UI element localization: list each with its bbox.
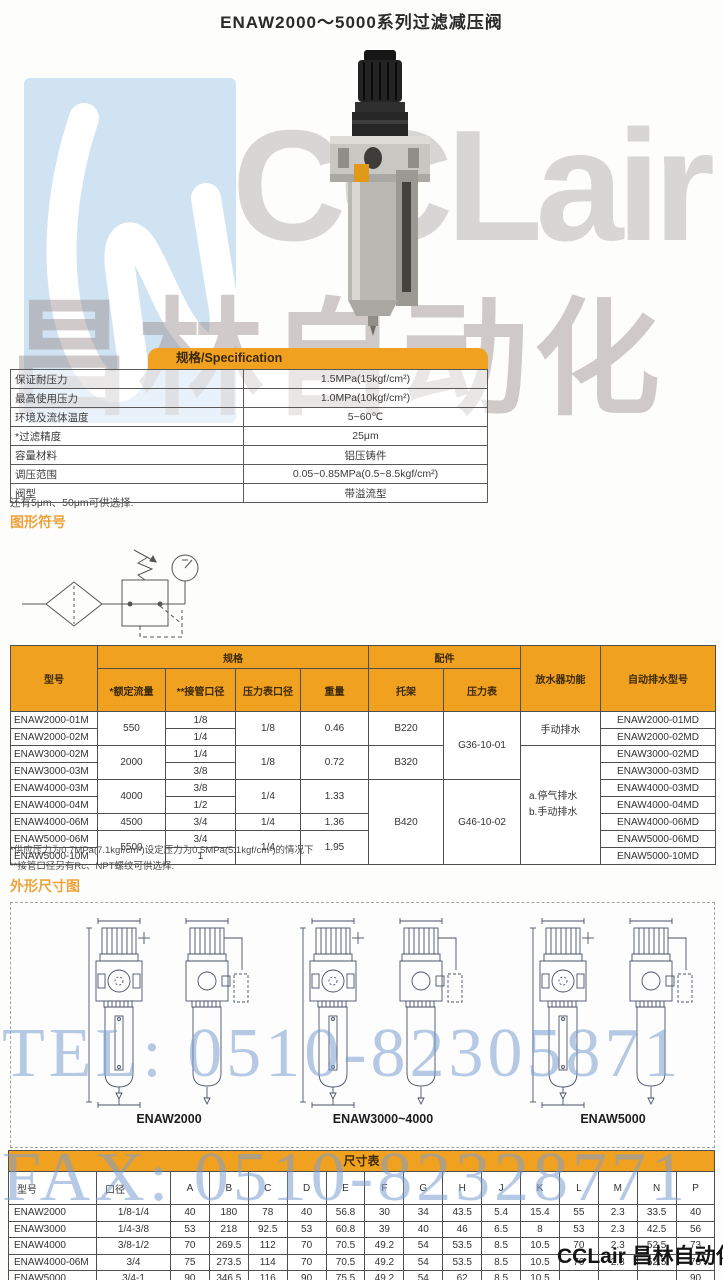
spec-row: 保证耐压力1.5MPa(15kgf/cm²): [11, 370, 488, 389]
symbol-section-title: 图形符号: [10, 512, 66, 532]
spec-row: 调压范围0.05~0.85MPa(0.5~8.5kgf/cm²): [11, 465, 488, 484]
footnote-2: **接管口径另有Rc、NPT螺纹可供选择.: [10, 859, 314, 875]
cell-flow: 4500: [98, 814, 166, 831]
cell: [559, 1271, 598, 1280]
cell-auto: ENAW4000-06MD: [601, 814, 716, 831]
brand-text-watermark: CCLair: [232, 96, 708, 277]
cell: 42.5: [637, 1221, 676, 1238]
spec-label: 保证耐压力: [11, 370, 244, 389]
cell: 53: [287, 1221, 326, 1238]
col-gauge-port: 压力表口径: [236, 669, 301, 712]
cell-auto: ENAW2000-02MD: [601, 729, 716, 746]
spec-row: 容量材料铝压铸件: [11, 446, 488, 465]
cell: 6.5: [482, 1221, 521, 1238]
cell: 92.5: [248, 1221, 287, 1238]
cell-model: ENAW4000-03M: [11, 780, 98, 797]
cell: 2.3: [598, 1221, 637, 1238]
col-header: M: [598, 1172, 637, 1205]
cell: 112: [248, 1238, 287, 1255]
catalog-page: CCLair 昌林自动化 ENAW2000～5000系列过滤减压阀 规格/Spe…: [0, 0, 723, 1280]
spec-value: 25μm: [244, 427, 488, 446]
cell: 43.5: [443, 1205, 482, 1222]
cell: 30: [365, 1205, 404, 1222]
cell: 49.2: [365, 1254, 404, 1271]
cell: 2.3: [598, 1254, 637, 1271]
cell-auto: ENAW5000-06MD: [601, 831, 716, 848]
col-header: C: [248, 1172, 287, 1205]
cell-model: ENAW4000-06M: [11, 814, 98, 831]
col-flow: *额定流量: [98, 669, 166, 712]
cell: 90: [171, 1271, 210, 1280]
cell-auto: ENAW5000-10MD: [601, 848, 716, 865]
cell: 70: [171, 1238, 210, 1255]
page-title: ENAW2000～5000系列过滤减压阀: [0, 8, 723, 33]
cell: 73: [676, 1254, 715, 1271]
col-spec-group: 规格: [98, 646, 369, 669]
cell-model: ENAW4000-04M: [11, 797, 98, 814]
cell-bracket: B320: [369, 746, 444, 780]
model-table: 型号 规格 配件 放水器功能 自动排水型号 *额定流量 **接管口径 压力表口径…: [10, 645, 716, 865]
table-row: ENAW4000-06M 4500 3/4 1/4 1.36 ENAW4000-…: [11, 814, 716, 831]
cell: 10.5: [521, 1254, 560, 1271]
cell: 70.5: [326, 1254, 365, 1271]
cell-auto: ENAW2000-01MD: [601, 712, 716, 729]
spec-section-header: 规格/Specification: [148, 348, 488, 369]
cell: 1/4-3/8: [97, 1221, 171, 1238]
cell: 54: [404, 1238, 443, 1255]
cell-gauge-port: 1/8: [236, 712, 301, 746]
cell: 70: [287, 1238, 326, 1255]
table-row: ENAW50003/4-190346.51169075.549.254628.5…: [9, 1271, 715, 1280]
cell-auto: ENAW4000-03MD: [601, 780, 716, 797]
cell: 53.5: [443, 1254, 482, 1271]
cell: 269.5: [209, 1238, 248, 1255]
spec-value: 0.05~0.85MPa(0.5~8.5kgf/cm²): [244, 465, 488, 484]
spec-value: 带溢流型: [244, 484, 488, 503]
cell: 53: [559, 1221, 598, 1238]
cell-weight: 0.46: [301, 712, 369, 746]
cell: 273.5: [209, 1254, 248, 1271]
cell-flow: 550: [98, 712, 166, 746]
cell-model: ENAW2000-01M: [11, 712, 98, 729]
cell: 53.5: [443, 1238, 482, 1255]
spec-row: 最高使用压力1.0MPa(10kgf/cm²): [11, 389, 488, 408]
cell-drain: a.停气排水b.手动排水: [521, 746, 601, 865]
col-header: 型号: [9, 1172, 97, 1205]
col-auto-model: 自动排水型号: [601, 646, 716, 712]
cell: 114: [248, 1254, 287, 1271]
col-header: D: [287, 1172, 326, 1205]
cell-weight: 1.36: [301, 814, 369, 831]
cell: 75: [171, 1254, 210, 1271]
spec-table: 保证耐压力1.5MPa(15kgf/cm²) 最高使用压力1.0MPa(10kg…: [10, 369, 488, 503]
col-header: E: [326, 1172, 365, 1205]
cell-weight: 0.72: [301, 746, 369, 780]
dimension-table-section: 尺寸表 型号 口径 A B C D E F G H J K L: [8, 1150, 715, 1280]
spec-label: 最高使用压力: [11, 389, 244, 408]
spec-label: 环境及流体温度: [11, 408, 244, 427]
cell: 46: [443, 1221, 482, 1238]
spec-row: 环境及流体温度5~60℃: [11, 408, 488, 427]
table-row: ENAW4000-06M3/475273.51147070.549.25453.…: [9, 1254, 715, 1271]
table-row: ENAW20001/8-1/440180784056.8303443.55.41…: [9, 1205, 715, 1222]
table-row: ENAW4000-03M 4000 3/8 1/4 1.33 B420 G46-…: [11, 780, 716, 797]
cell-model: ENAW3000-03M: [11, 763, 98, 780]
cell: 52.5: [637, 1238, 676, 1255]
cell: 8.5: [482, 1271, 521, 1280]
cell-port: 1/8: [166, 712, 236, 729]
cell: 40: [676, 1205, 715, 1222]
table-row: ENAW30001/4-3/85321892.55360.83940466.58…: [9, 1221, 715, 1238]
dimension-table-title: 尺寸表: [8, 1150, 715, 1171]
drawing-label-enaw2000: ENAW2000: [84, 1112, 254, 1126]
cell-auto: ENAW3000-02MD: [601, 746, 716, 763]
table-footnotes: *供应压力为0.7MPa(7.1kgf/cm²)设定压力为0.5MPa(5.1k…: [10, 843, 314, 875]
cell: 70: [559, 1238, 598, 1255]
col-weight: 重量: [301, 669, 369, 712]
table-row: ENAW3000-02M 2000 1/4 1/8 0.72 B320 a.停气…: [11, 746, 716, 763]
drawing-label-enaw3000-4000: ENAW3000~4000: [293, 1112, 473, 1126]
cell: 10.5: [521, 1271, 560, 1280]
col-header: N: [637, 1172, 676, 1205]
cell-drain: 手动排水: [521, 712, 601, 746]
spec-label: *过滤精度: [11, 427, 244, 446]
col-header: B: [209, 1172, 248, 1205]
drawing-enaw5000: [528, 916, 698, 1112]
col-gauge: 压力表: [444, 669, 521, 712]
drawing-enaw2000: [84, 916, 254, 1112]
cell: ENAW3000: [9, 1221, 97, 1238]
cell-bracket: B420: [369, 780, 444, 865]
cell-port: 3/8: [166, 763, 236, 780]
cell: ENAW4000: [9, 1238, 97, 1255]
cell: 346.5: [209, 1271, 248, 1280]
cell: 3/8-1/2: [97, 1238, 171, 1255]
spec-value: 铝压铸件: [244, 446, 488, 465]
cell: [598, 1271, 637, 1280]
spec-value: 1.0MPa(10kgf/cm²): [244, 389, 488, 408]
drain-option-a: a.停气排水: [529, 791, 577, 802]
col-header: A: [171, 1172, 210, 1205]
cell-port: 3/4: [166, 814, 236, 831]
cell-auto: ENAW4000-04MD: [601, 797, 716, 814]
spec-label: 调压范围: [11, 465, 244, 484]
cell-port: 1/4: [166, 729, 236, 746]
cell: 40: [287, 1205, 326, 1222]
cell-gauge-port: 1/8: [236, 746, 301, 780]
drawing-label-enaw5000: ENAW5000: [528, 1112, 698, 1126]
cell-bracket: B220: [369, 712, 444, 746]
dimension-table: 型号 口径 A B C D E F G H J K L M N P: [8, 1171, 715, 1280]
cell: ENAW2000: [9, 1205, 97, 1222]
cell-flow: 4000: [98, 780, 166, 814]
cell: 8.5: [482, 1254, 521, 1271]
cell: 54: [404, 1271, 443, 1280]
cell: 8.5: [482, 1238, 521, 1255]
cell-model: ENAW2000-02M: [11, 729, 98, 746]
spec-note: 还有5μm、50μm可供选择.: [10, 495, 134, 510]
col-header: K: [521, 1172, 560, 1205]
cell-gauge: G36-10-01: [444, 712, 521, 780]
cell-port: 1/2: [166, 797, 236, 814]
cell: 116: [248, 1271, 287, 1280]
cell: 10.5: [521, 1238, 560, 1255]
spec-value: 5~60℃: [244, 408, 488, 427]
pneumatic-symbol-diagram: [22, 536, 207, 638]
col-header: F: [365, 1172, 404, 1205]
col-header: G: [404, 1172, 443, 1205]
col-header: L: [559, 1172, 598, 1205]
cell: 49.2: [365, 1238, 404, 1255]
col-header: P: [676, 1172, 715, 1205]
cell: 60.8: [326, 1221, 365, 1238]
cell: 56.8: [326, 1205, 365, 1222]
drawing-enaw3000-4000: [298, 916, 468, 1112]
cell: 62: [443, 1271, 482, 1280]
table-header-row: 型号 规格 配件 放水器功能 自动排水型号: [11, 646, 716, 669]
cell-weight: 1.33: [301, 780, 369, 814]
cell: 56: [676, 1221, 715, 1238]
cell-auto: ENAW3000-03MD: [601, 763, 716, 780]
cell: 90: [676, 1271, 715, 1280]
cell: 39: [365, 1221, 404, 1238]
cell: 55: [559, 1205, 598, 1222]
cell: 34: [404, 1205, 443, 1222]
cell-port: 1/4: [166, 746, 236, 763]
cell: 8: [521, 1221, 560, 1238]
cell: 73: [676, 1238, 715, 1255]
dimension-section-title: 外形尺寸图: [10, 876, 80, 896]
col-header: J: [482, 1172, 521, 1205]
cell: 2.3: [598, 1205, 637, 1222]
cell: 75.5: [326, 1271, 365, 1280]
cell: 52.5: [637, 1254, 676, 1271]
col-acc-group: 配件: [369, 646, 521, 669]
cell: 3/4-1: [97, 1271, 171, 1280]
cell: 33.5: [637, 1205, 676, 1222]
cell: 53: [171, 1221, 210, 1238]
cell: 70: [559, 1254, 598, 1271]
drain-option-b: b.手动排水: [529, 807, 577, 818]
cell: 40: [404, 1221, 443, 1238]
col-drain: 放水器功能: [521, 646, 601, 712]
col-model: 型号: [11, 646, 98, 712]
col-port: **接管口径: [166, 669, 236, 712]
cell-gauge-port: 1/4: [236, 814, 301, 831]
cell: 40: [171, 1205, 210, 1222]
cell: 1/8-1/4: [97, 1205, 171, 1222]
cell: 70.5: [326, 1238, 365, 1255]
footnote-1: *供应压力为0.7MPa(7.1kgf/cm²)设定压力为0.5MPa(5.1k…: [10, 843, 314, 859]
cell: 15.4: [521, 1205, 560, 1222]
cell: 49.2: [365, 1271, 404, 1280]
cell-gauge: G46-10-02: [444, 780, 521, 865]
cell: 180: [209, 1205, 248, 1222]
cell: 90: [287, 1271, 326, 1280]
cell-gauge-port: 1/4: [236, 780, 301, 814]
spec-value: 1.5MPa(15kgf/cm²): [244, 370, 488, 389]
cell-flow: 2000: [98, 746, 166, 780]
cell: 3/4: [97, 1254, 171, 1271]
cell: 70: [287, 1254, 326, 1271]
spec-label: 容量材料: [11, 446, 244, 465]
cell: [637, 1271, 676, 1280]
table-row: ENAW40003/8-1/270269.51127070.549.25453.…: [9, 1238, 715, 1255]
cell-port: 3/8: [166, 780, 236, 797]
cell: 54: [404, 1254, 443, 1271]
col-bracket: 托架: [369, 669, 444, 712]
cell: ENAW5000: [9, 1271, 97, 1280]
cell: 5.4: [482, 1205, 521, 1222]
product-photo: [318, 46, 438, 346]
table-header-row: 型号 口径 A B C D E F G H J K L M N P: [9, 1172, 715, 1205]
col-header: 口径: [97, 1172, 171, 1205]
cell-model: ENAW3000-02M: [11, 746, 98, 763]
table-row: ENAW2000-01M 550 1/8 1/8 0.46 B220 G36-1…: [11, 712, 716, 729]
col-header: H: [443, 1172, 482, 1205]
spec-row: *过滤精度25μm: [11, 427, 488, 446]
cell: 218: [209, 1221, 248, 1238]
cell: ENAW4000-06M: [9, 1254, 97, 1271]
cell: 2.3: [598, 1238, 637, 1255]
cell: 78: [248, 1205, 287, 1222]
